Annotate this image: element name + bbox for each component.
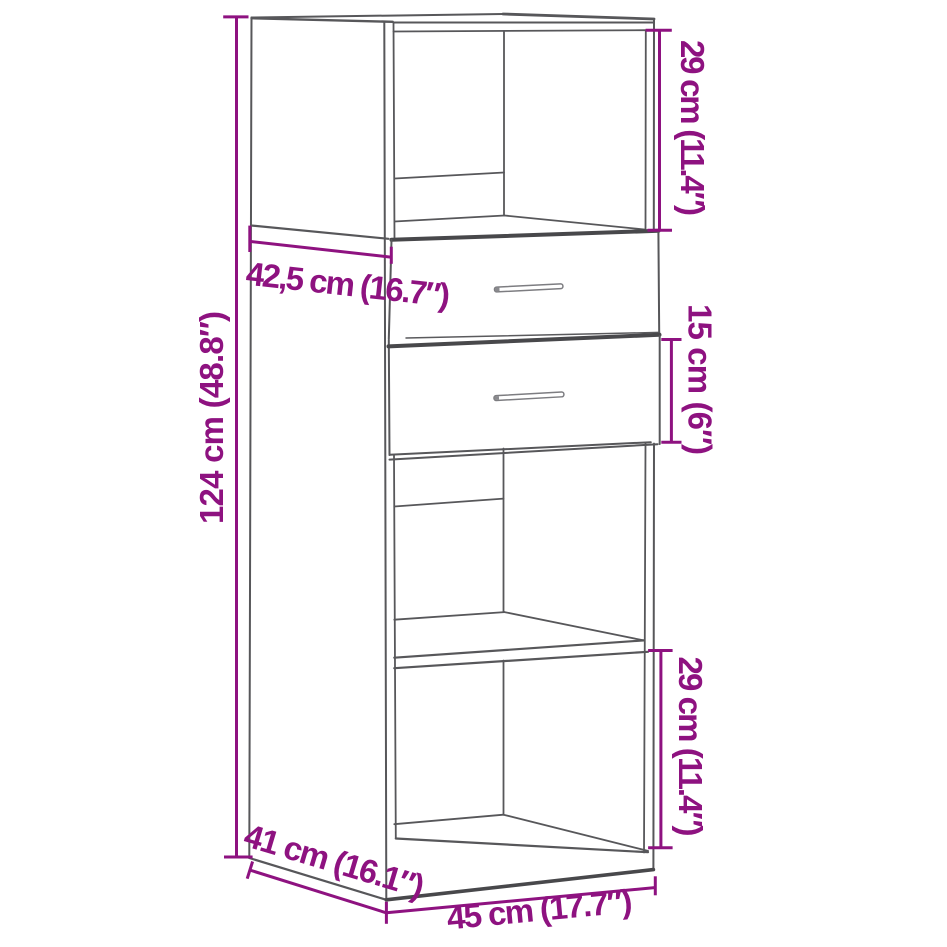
svg-text:124 cm (48.8″): 124 cm (48.8″)	[193, 311, 230, 524]
svg-text:29 cm (11.4″): 29 cm (11.4″)	[672, 657, 709, 837]
svg-text:15 cm (6″): 15 cm (6″)	[682, 304, 719, 455]
svg-text:29 cm (11.4″): 29 cm (11.4″)	[674, 40, 711, 216]
